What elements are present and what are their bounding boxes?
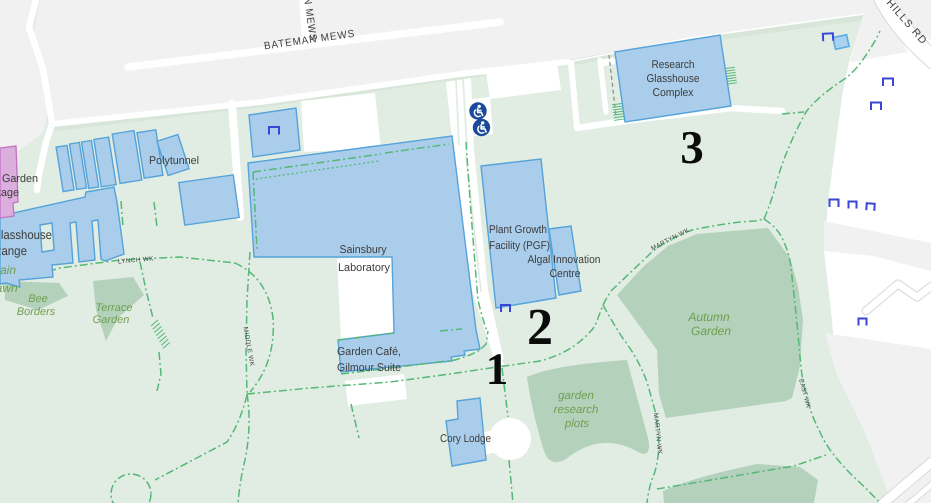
- svg-text:Glasshouse: Glasshouse: [647, 73, 700, 85]
- svg-text:Terrace: Terrace: [96, 302, 133, 314]
- svg-text:Cory Lodge: Cory Lodge: [440, 433, 491, 445]
- svg-text:Complex: Complex: [653, 87, 694, 99]
- svg-text:Lawn: Lawn: [0, 281, 18, 295]
- svg-text:Centre: Centre: [550, 268, 581, 280]
- svg-text:Garden: Garden: [93, 314, 130, 326]
- svg-text:Garden Café,: Garden Café,: [337, 346, 401, 358]
- svg-text:research: research: [554, 404, 599, 416]
- svg-text:Gilmour Suite: Gilmour Suite: [337, 362, 401, 374]
- svg-text:3: 3: [680, 122, 704, 174]
- svg-text:Garden: Garden: [2, 173, 38, 185]
- svg-text:Polytunnel: Polytunnel: [149, 155, 199, 167]
- svg-text:2: 2: [527, 299, 553, 356]
- svg-text:Facility (PGF): Facility (PGF): [489, 240, 550, 252]
- svg-text:Garden: Garden: [691, 324, 731, 338]
- svg-text:Glasshouse: Glasshouse: [0, 228, 52, 242]
- svg-text:Borders: Borders: [17, 306, 56, 318]
- svg-text:Autumn: Autumn: [687, 310, 730, 324]
- svg-text:plots: plots: [564, 418, 590, 430]
- svg-text:Algal Innovation: Algal Innovation: [528, 254, 601, 266]
- svg-text:Plant Growth: Plant Growth: [489, 224, 547, 236]
- svg-text:garden: garden: [558, 390, 594, 402]
- svg-text:Research: Research: [652, 59, 695, 71]
- svg-text:Cottage: Cottage: [0, 187, 19, 199]
- svg-text:Range: Range: [0, 244, 27, 258]
- svg-text:Main: Main: [0, 263, 16, 277]
- svg-text:Sainsbury: Sainsbury: [340, 244, 387, 256]
- svg-text:Bee: Bee: [28, 293, 48, 305]
- svg-text:1: 1: [486, 344, 509, 394]
- svg-text:Laboratory: Laboratory: [338, 262, 390, 274]
